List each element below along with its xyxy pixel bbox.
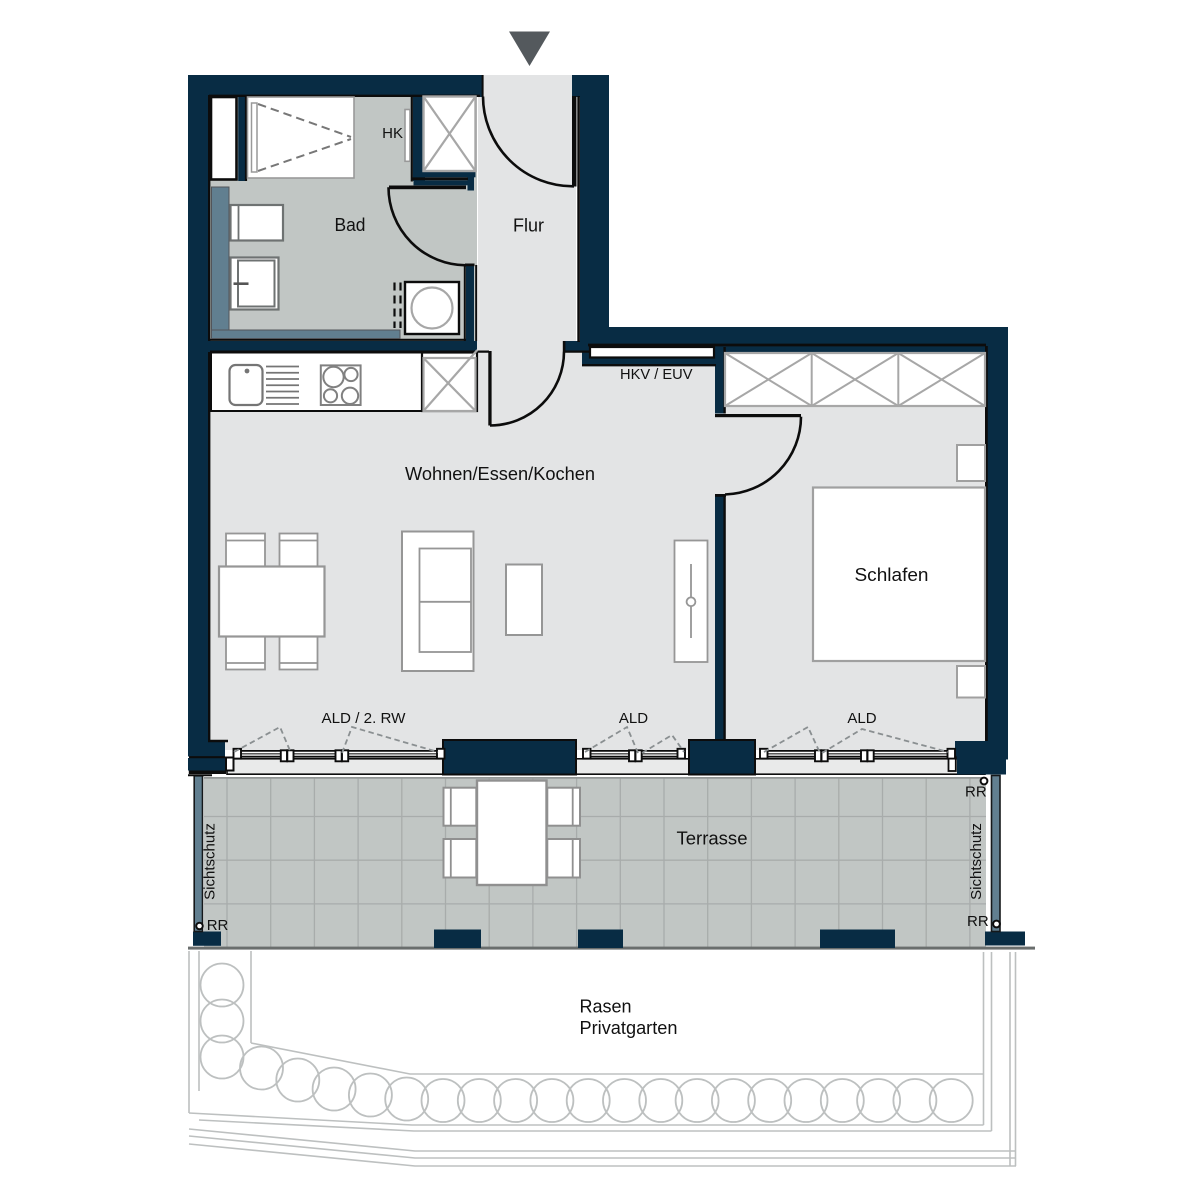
svg-text:RR: RR <box>965 784 987 801</box>
svg-text:HKV / EUV: HKV / EUV <box>620 366 693 383</box>
svg-text:RR: RR <box>967 913 989 930</box>
svg-text:Wohnen/Essen/Kochen: Wohnen/Essen/Kochen <box>405 463 595 484</box>
svg-text:Rasen: Rasen <box>580 996 632 1017</box>
svg-text:Flur: Flur <box>513 215 544 236</box>
svg-text:HK: HK <box>382 125 403 142</box>
svg-text:Bad: Bad <box>335 214 366 235</box>
svg-text:Privatgarten: Privatgarten <box>580 1017 678 1038</box>
svg-text:Sichtschutz: Sichtschutz <box>968 823 985 900</box>
svg-text:ALD: ALD <box>619 710 648 727</box>
svg-text:Schlafen: Schlafen <box>855 564 929 585</box>
svg-text:ALD: ALD <box>847 710 876 727</box>
svg-text:ALD / 2. RW: ALD / 2. RW <box>322 710 407 727</box>
svg-text:Terrasse: Terrasse <box>677 828 748 849</box>
svg-text:RR: RR <box>207 917 229 934</box>
svg-text:Sichtschutz: Sichtschutz <box>202 823 219 900</box>
